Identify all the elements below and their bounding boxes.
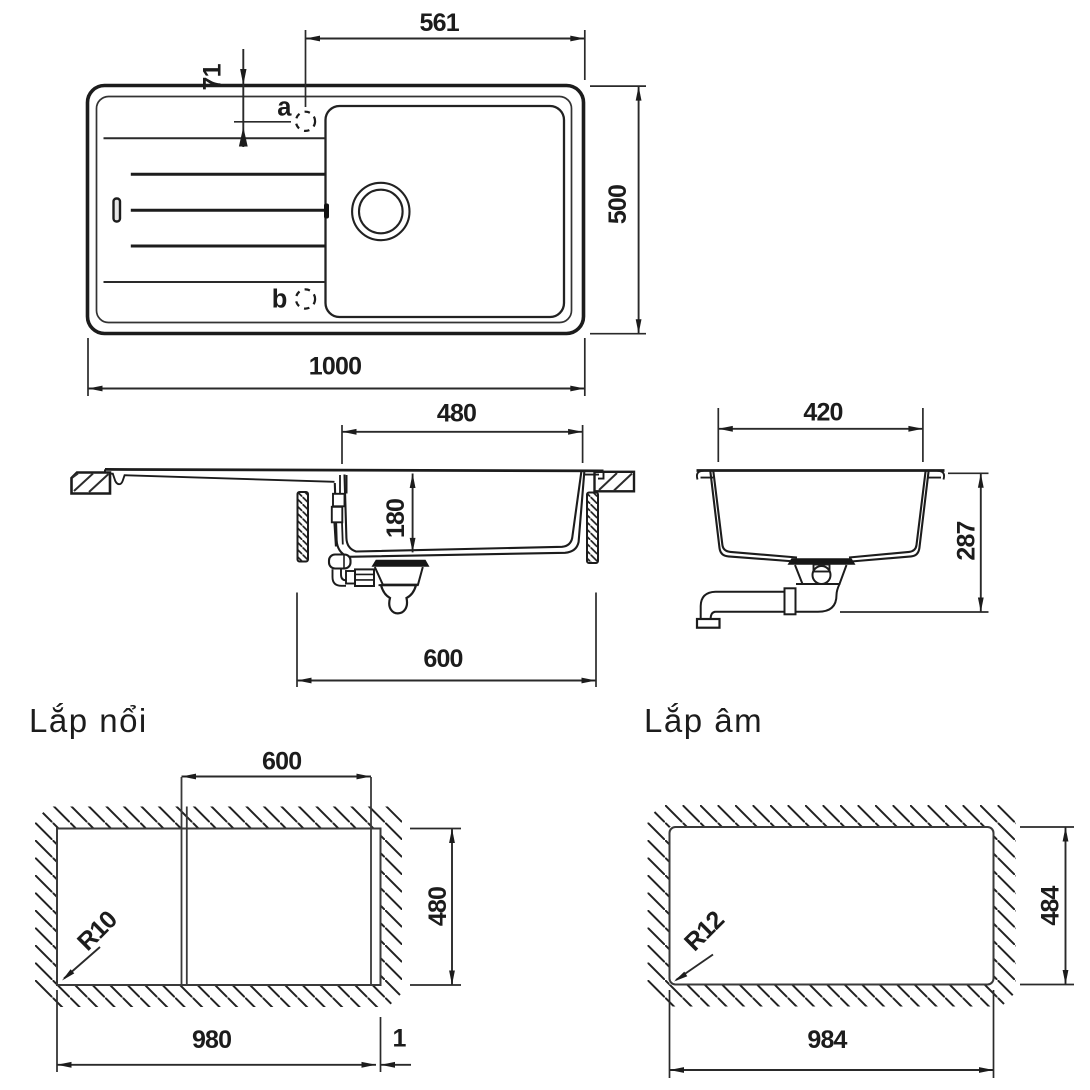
svg-text:500: 500: [604, 185, 632, 224]
svg-text:1: 1: [392, 1025, 406, 1053]
svg-text:420: 420: [803, 399, 842, 427]
svg-text:600: 600: [262, 748, 301, 776]
svg-text:71: 71: [199, 63, 227, 90]
svg-text:287: 287: [953, 521, 981, 560]
svg-text:Lắp nổi: Lắp nổi: [29, 702, 148, 739]
svg-text:1000: 1000: [309, 353, 361, 381]
svg-text:980: 980: [192, 1026, 231, 1054]
svg-text:a: a: [277, 94, 292, 122]
svg-text:Lắp âm: Lắp âm: [644, 702, 763, 739]
svg-text:180: 180: [382, 499, 410, 538]
svg-text:600: 600: [423, 645, 462, 673]
svg-text:b: b: [272, 286, 288, 314]
svg-text:561: 561: [420, 9, 460, 37]
svg-text:480: 480: [437, 400, 476, 428]
svg-text:480: 480: [424, 887, 452, 926]
svg-text:484: 484: [1037, 885, 1065, 925]
svg-text:984: 984: [807, 1026, 847, 1054]
